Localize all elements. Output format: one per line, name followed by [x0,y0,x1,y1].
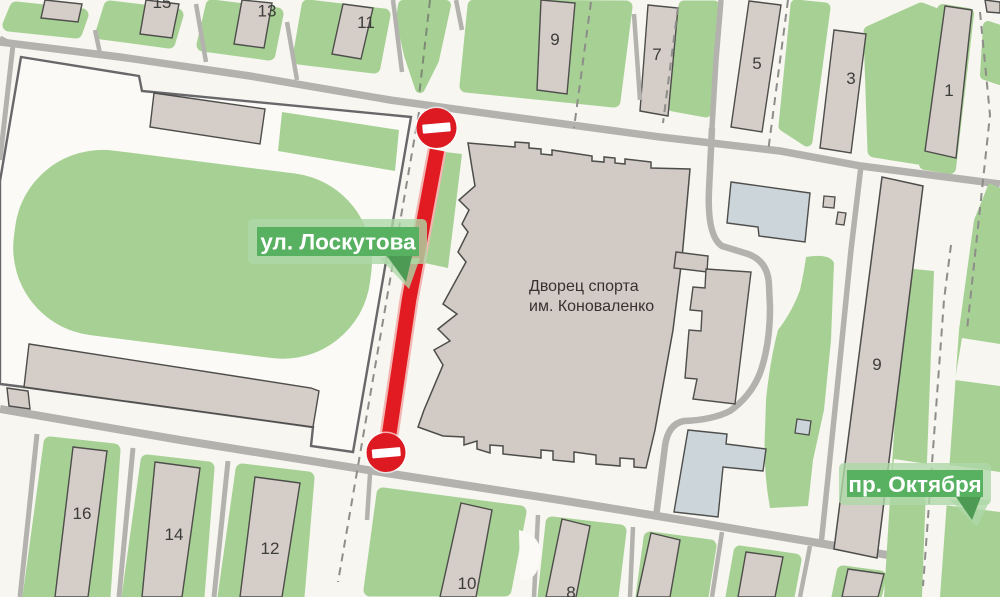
svg-text:15: 15 [153,0,172,12]
svg-text:8: 8 [566,583,575,597]
svg-text:7: 7 [652,45,661,64]
svg-text:3: 3 [846,69,855,88]
svg-text:5: 5 [752,54,761,73]
svg-text:им. Коноваленко: им. Коноваленко [529,298,654,315]
svg-text:14: 14 [165,525,184,544]
svg-text:9: 9 [550,30,559,49]
svg-text:1: 1 [944,81,953,100]
svg-text:12: 12 [261,539,280,558]
svg-text:ул. Лоскутова: ул. Лоскутова [260,230,416,255]
svg-text:16: 16 [73,504,92,523]
svg-text:пр. Октября: пр. Октября [848,472,981,497]
svg-text:10: 10 [458,574,477,593]
svg-text:11: 11 [357,13,375,32]
svg-text:Дворец спорта: Дворец спорта [529,278,639,295]
svg-text:9: 9 [872,355,881,374]
svg-text:13: 13 [258,2,277,21]
